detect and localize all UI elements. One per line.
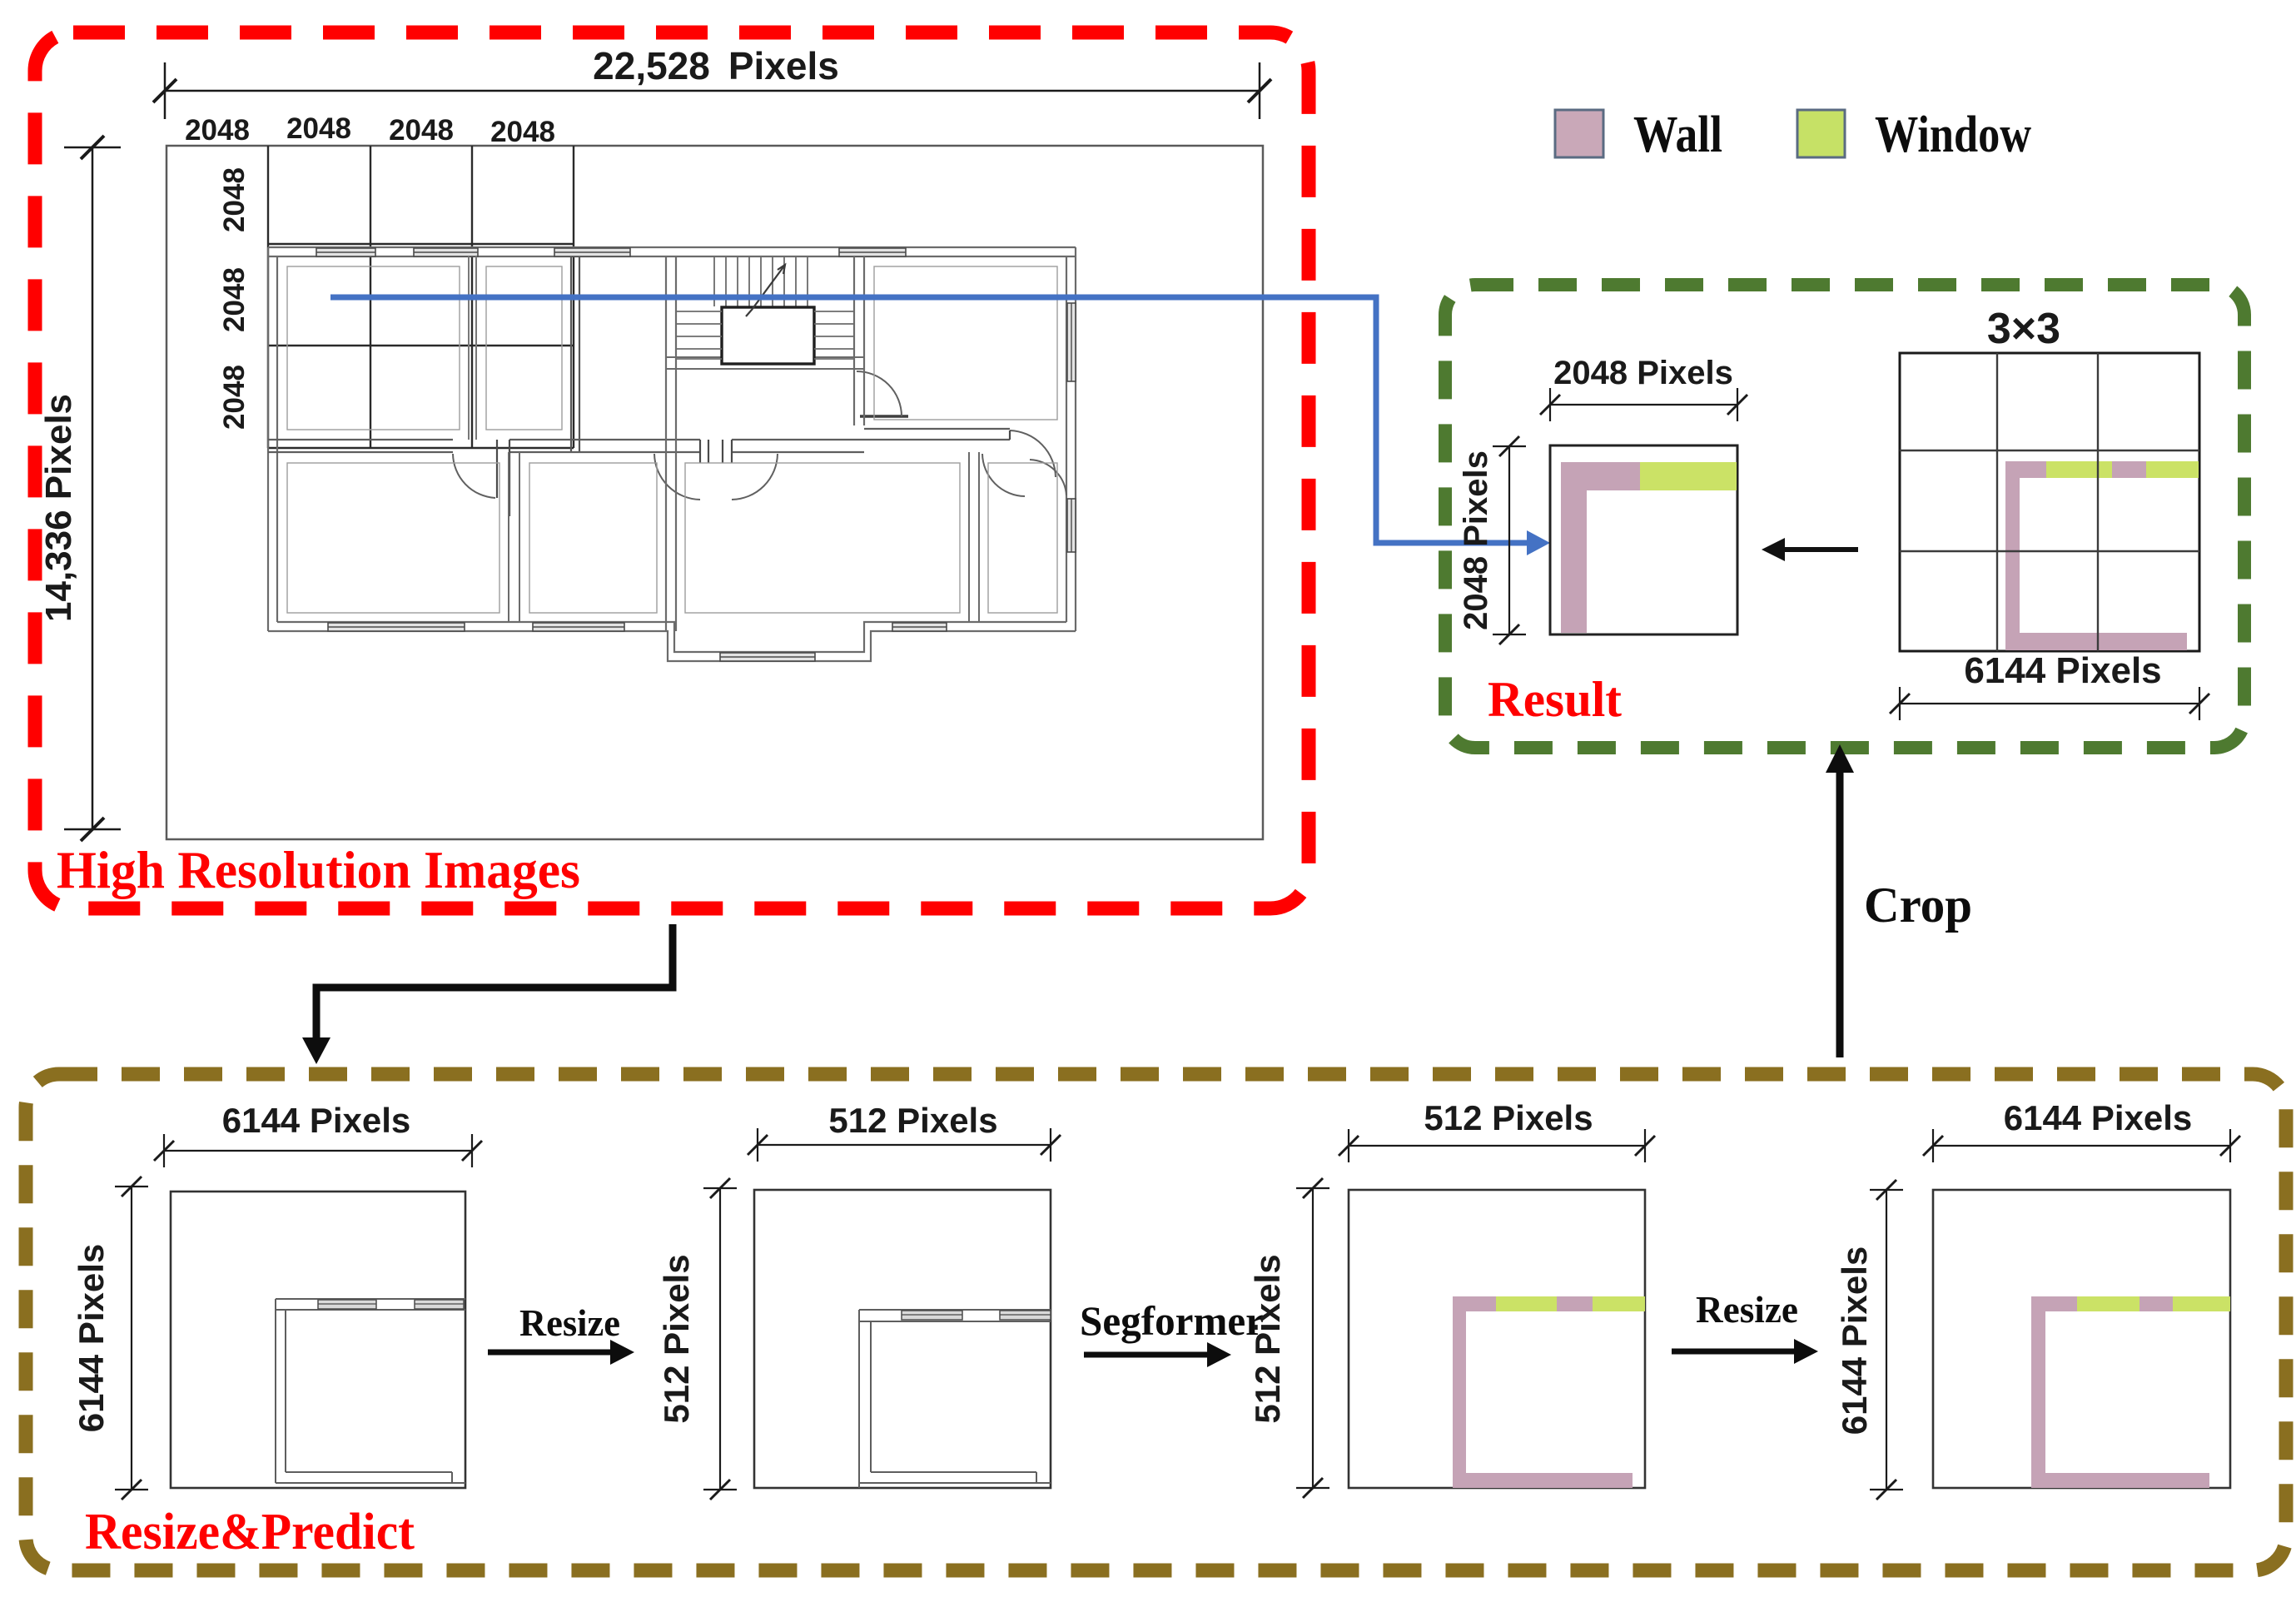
svg-text:Window: Window — [1875, 107, 2031, 163]
svg-text:2048: 2048 — [286, 112, 351, 145]
svg-text:2048 Pixels: 2048 Pixels — [1553, 355, 1733, 391]
svg-text:6144 Pixels: 6144 Pixels — [1964, 650, 2161, 691]
svg-text:2048: 2048 — [389, 114, 454, 147]
svg-text:22,528 Pixels: 22,528 Pixels — [593, 44, 839, 87]
svg-text:2048: 2048 — [218, 267, 251, 332]
svg-text:2048 Pixels: 2048 Pixels — [1458, 450, 1494, 630]
svg-text:2048: 2048 — [185, 114, 250, 147]
svg-text:6144 Pixels: 6144 Pixels — [1835, 1246, 1874, 1435]
svg-text:3×3: 3×3 — [1987, 305, 2060, 353]
svg-text:Resize: Resize — [519, 1301, 620, 1344]
svg-text:Result: Result — [1488, 672, 1622, 727]
svg-text:2048: 2048 — [218, 167, 251, 232]
svg-text:2048: 2048 — [490, 116, 555, 148]
svg-text:Wall: Wall — [1633, 107, 1722, 163]
svg-text:512 Pixels: 512 Pixels — [657, 1254, 696, 1423]
svg-text:6144 Pixels: 6144 Pixels — [2004, 1098, 2193, 1137]
svg-text:6144 Pixels: 6144 Pixels — [222, 1101, 411, 1140]
svg-text:2048: 2048 — [218, 365, 251, 430]
svg-text:512 Pixels: 512 Pixels — [828, 1101, 997, 1140]
svg-text:512 Pixels: 512 Pixels — [1424, 1098, 1593, 1137]
svg-text:High Resolution Images: High Resolution Images — [57, 840, 580, 899]
svg-text:512 Pixels: 512 Pixels — [1248, 1254, 1287, 1423]
svg-text:Segformer: Segformer — [1080, 1297, 1264, 1344]
svg-text:Crop: Crop — [1864, 878, 1972, 933]
svg-text:Resize: Resize — [1696, 1288, 1798, 1331]
svg-text:Resize&Predict: Resize&Predict — [85, 1504, 415, 1560]
svg-text:6144 Pixels: 6144 Pixels — [72, 1244, 111, 1433]
svg-text:14,336 Pixels: 14,336 Pixels — [38, 394, 79, 622]
